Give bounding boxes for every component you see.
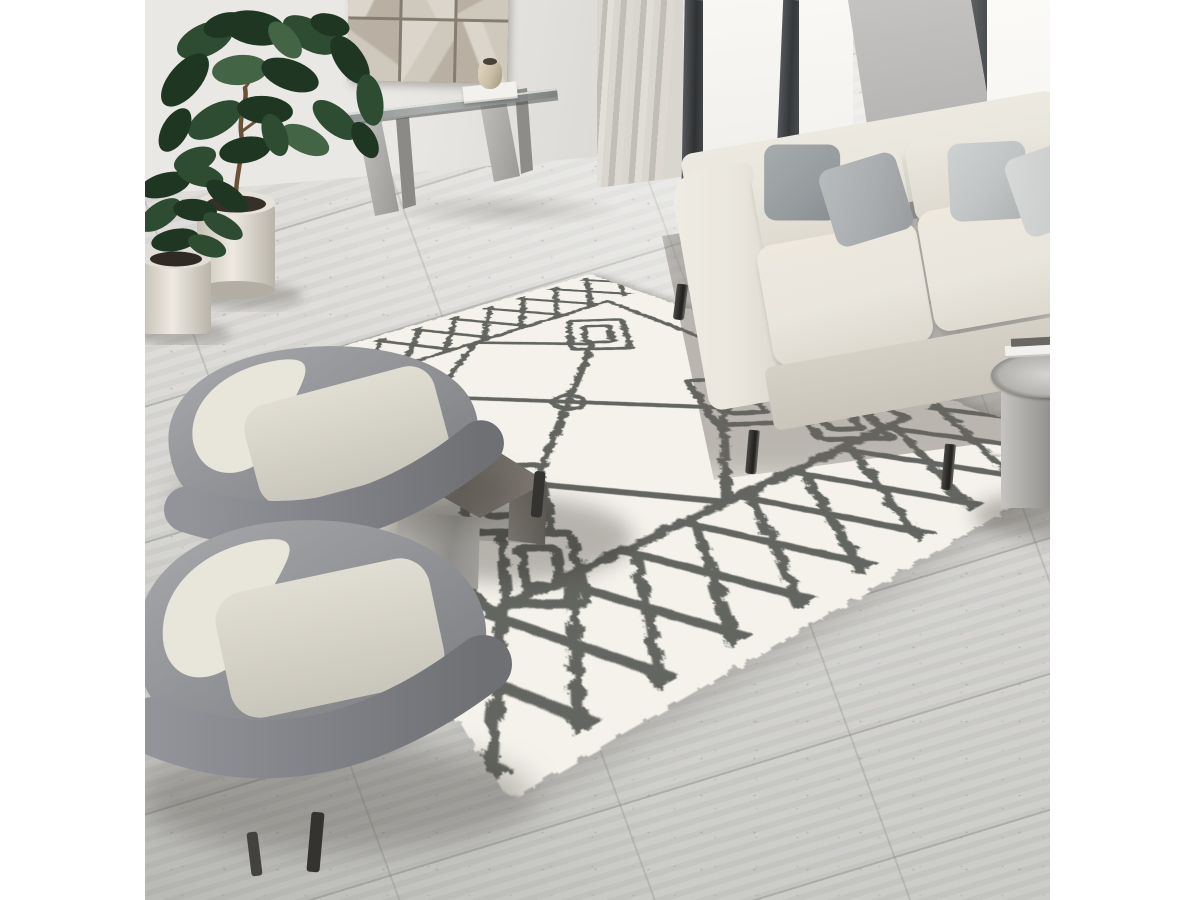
photo-content xyxy=(145,0,1050,900)
white-letterbox-right xyxy=(1050,0,1200,900)
wall-art-panel xyxy=(401,20,454,82)
side-table-body xyxy=(1001,382,1050,508)
plant-pot-small xyxy=(145,247,211,334)
living-room-photo xyxy=(0,0,1200,900)
chair-leg xyxy=(246,831,262,876)
wall-art-panel xyxy=(403,0,455,19)
wall-art-panel xyxy=(457,0,509,20)
potted-plants xyxy=(145,0,405,345)
fiddle-leaf-fig-foliage xyxy=(152,6,388,179)
console-vase xyxy=(478,60,502,89)
white-letterbox-left xyxy=(0,0,145,900)
armchair-front xyxy=(145,482,533,882)
chair-leg xyxy=(306,812,324,873)
